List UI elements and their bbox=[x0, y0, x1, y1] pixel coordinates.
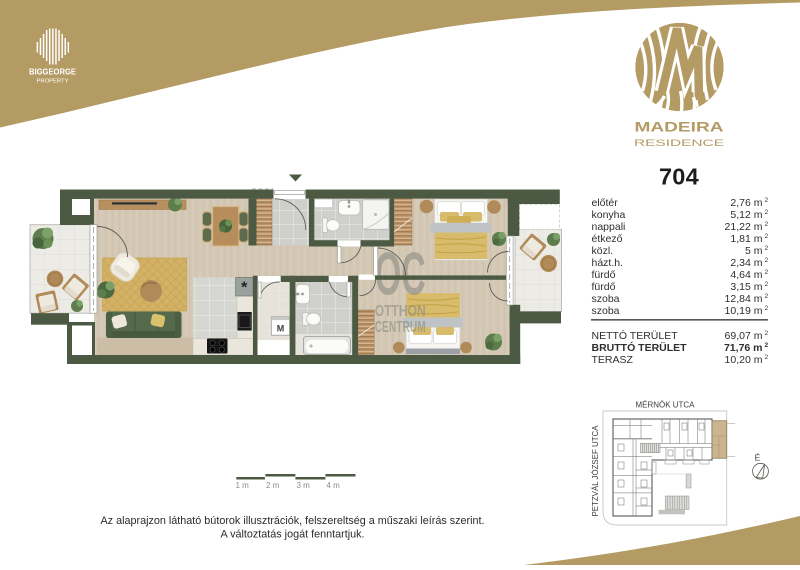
svg-text:OTTHON: OTTHON bbox=[375, 303, 426, 320]
svg-text:előtér: előtér bbox=[592, 197, 619, 209]
svg-text:2: 2 bbox=[765, 354, 769, 361]
svg-text:2: 2 bbox=[765, 209, 769, 216]
svg-text:*: * bbox=[241, 280, 248, 297]
svg-text:2,76 m: 2,76 m bbox=[730, 197, 762, 209]
svg-text:5,12 m: 5,12 m bbox=[730, 209, 762, 221]
svg-text:69,07 m: 69,07 m bbox=[725, 330, 763, 342]
svg-text:közl.: közl. bbox=[592, 245, 614, 257]
svg-text:konyha: konyha bbox=[592, 209, 626, 221]
svg-text:2: 2 bbox=[765, 293, 769, 300]
svg-text:szoba: szoba bbox=[592, 305, 620, 317]
svg-text:4,64 m: 4,64 m bbox=[730, 269, 762, 281]
svg-text:2: 2 bbox=[765, 245, 769, 252]
svg-text:2: 2 bbox=[765, 305, 769, 312]
svg-text:PROPERTY: PROPERTY bbox=[37, 79, 69, 85]
svg-text:RESIDENCE: RESIDENCE bbox=[634, 138, 724, 149]
svg-text:A változtatás jogát fenntartju: A változtatás jogát fenntartjuk. bbox=[220, 529, 364, 541]
svg-text:21,22 m: 21,22 m bbox=[725, 221, 763, 233]
svg-text:étkező: étkező bbox=[592, 233, 623, 245]
svg-text:3 m: 3 m bbox=[297, 481, 311, 490]
svg-text:fürdő: fürdő bbox=[592, 269, 616, 281]
svg-text:CENTRUM: CENTRUM bbox=[375, 319, 426, 336]
svg-text:2: 2 bbox=[765, 330, 769, 337]
svg-text:TERASZ: TERASZ bbox=[592, 354, 634, 366]
svg-text:2: 2 bbox=[765, 269, 769, 276]
svg-text:4 m: 4 m bbox=[327, 481, 341, 490]
svg-text:2: 2 bbox=[765, 342, 769, 349]
svg-text:12,84 m: 12,84 m bbox=[725, 293, 763, 305]
svg-text:3,15 m: 3,15 m bbox=[730, 281, 762, 293]
svg-text:704: 704 bbox=[659, 164, 699, 190]
svg-text:5 m: 5 m bbox=[745, 245, 763, 257]
svg-text:OC: OC bbox=[375, 241, 426, 308]
svg-text:É: É bbox=[755, 453, 761, 463]
svg-text:PETZVÁL JÓZSEF UTCA: PETZVÁL JÓZSEF UTCA bbox=[591, 425, 600, 517]
svg-text:BRUTTÓ TERÜLET: BRUTTÓ TERÜLET bbox=[592, 341, 688, 354]
svg-text:2: 2 bbox=[765, 281, 769, 288]
svg-text:Az alaprajzon látható bútorok: Az alaprajzon látható bútorok illusztrác… bbox=[100, 515, 484, 527]
svg-text:BIGGEORGE: BIGGEORGE bbox=[29, 68, 76, 77]
svg-text:2: 2 bbox=[765, 221, 769, 228]
svg-text:71,76 m: 71,76 m bbox=[724, 342, 763, 354]
svg-text:2 m: 2 m bbox=[266, 481, 280, 490]
svg-text:szoba: szoba bbox=[592, 293, 620, 305]
svg-text:MADEIRA: MADEIRA bbox=[635, 119, 724, 135]
svg-text:MÉRNÖK UTCA: MÉRNÖK UTCA bbox=[636, 401, 696, 410]
svg-text:M: M bbox=[277, 324, 285, 334]
svg-text:10,19 m: 10,19 m bbox=[725, 305, 763, 317]
svg-text:NETTÓ TERÜLET: NETTÓ TERÜLET bbox=[592, 329, 679, 342]
svg-text:nappali: nappali bbox=[592, 221, 626, 233]
svg-text:házt.h.: házt.h. bbox=[592, 257, 624, 269]
svg-text:10,20 m: 10,20 m bbox=[725, 354, 763, 366]
svg-text:2: 2 bbox=[765, 257, 769, 264]
svg-text:2: 2 bbox=[765, 197, 769, 204]
svg-text:fürdő: fürdő bbox=[592, 281, 616, 293]
svg-text:2: 2 bbox=[765, 233, 769, 240]
svg-text:1,81 m: 1,81 m bbox=[730, 233, 762, 245]
svg-text:1 m: 1 m bbox=[236, 481, 250, 490]
svg-text:2,34 m: 2,34 m bbox=[730, 257, 762, 269]
